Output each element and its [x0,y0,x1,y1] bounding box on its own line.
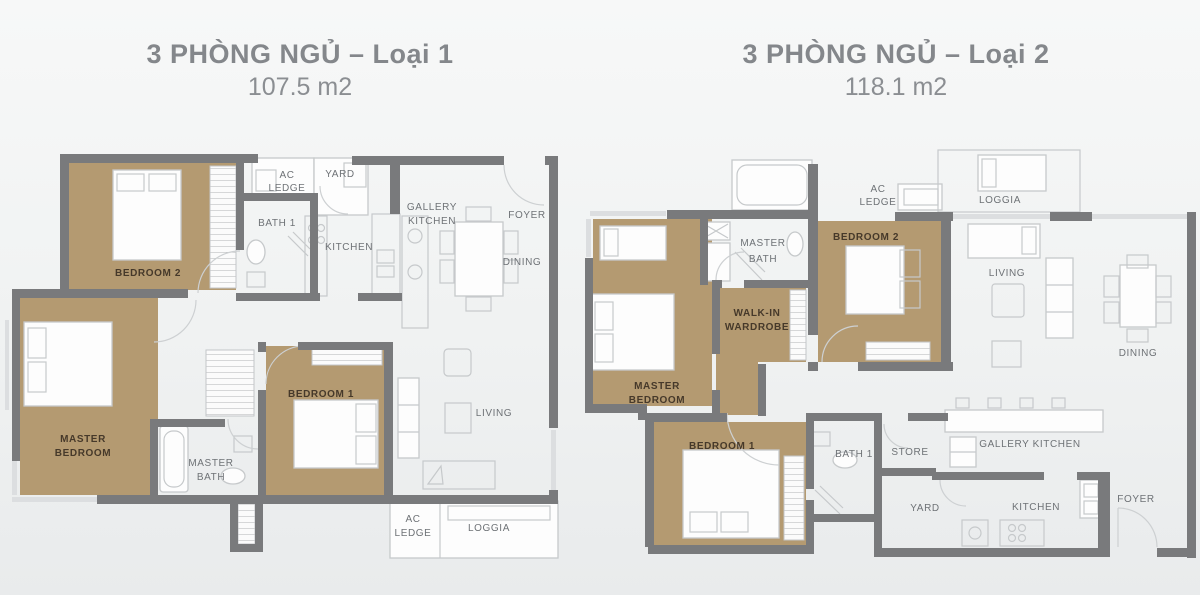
plan1-label-foyer: FOYER [508,210,545,221]
plan1-label-ac-ledge-top-2: LEDGE [269,183,306,194]
plan2-label-masterbath-2: BATH [749,254,777,265]
plan1-label-bedroom1: BEDROOM 1 [288,389,354,400]
plan2-label-foyer: FOYER [1117,494,1154,505]
plan2-label-store: STORE [891,447,928,458]
plan2-label-bath1: BATH 1 [835,449,873,460]
plan2-label-yard: YARD [910,503,939,514]
plan2-service-outlines [732,150,1080,212]
plan1-label-ac-ledge-top-1: AC [279,170,294,181]
plan2-label-master-2: BEDROOM [629,395,685,406]
plan1-label-kitchen: KITCHEN [325,242,373,253]
plan2-label-living: LIVING [989,268,1025,279]
plan2-label-walkin-1: WALK-IN [734,308,781,319]
plan2-label-dining: DINING [1119,348,1158,359]
plan1-label-dining: DINING [503,257,542,268]
floor-plan-sheet: 3 PHÒNG NGỦ – Loại 1 107.5 m2 3 PHÒNG NG… [0,0,1200,595]
plan1-label-bath1: BATH 1 [258,218,296,229]
plan1-label-loggia: LOGGIA [468,523,510,534]
floor-plan-canvas: BEDROOM 2 AC LEDGE YARD BATH 1 KITCHEN G… [0,0,1200,595]
plan1-label-bedroom2: BEDROOM 2 [115,268,181,279]
plan2-label-ac-ledge-2: LEDGE [860,197,897,208]
plan1-label-yard: YARD [325,169,354,180]
plan1-label-master-2: BEDROOM [55,448,111,459]
plan1-label-masterbath-1: MASTER [188,458,233,469]
plan2-label-kitchen: KITCHEN [1012,502,1060,513]
plan2-label-loggia: LOGGIA [979,195,1021,206]
plan2-label-gallery-kitchen: GALLERY KITCHEN [979,439,1080,450]
plan2-label-walkin-2: WARDROBE [725,322,789,333]
plan1-label-master-1: MASTER [60,434,106,445]
plan1-label-masterbath-2: BATH [197,472,225,483]
floor-plan-loai-1: BEDROOM 2 AC LEDGE YARD BATH 1 KITCHEN G… [5,154,558,558]
plan1-label-ac-ledge-bot-1: AC [405,514,420,525]
plan1-label-gallery-1: GALLERY [407,202,457,213]
plan2-label-ac-ledge-1: AC [870,184,885,195]
plan1-label-ac-ledge-bot-2: LEDGE [395,528,432,539]
floor-plan-loai-2: MASTER BATH AC LEDGE LOGGIA BEDROOM 2 WA… [585,150,1196,558]
plan2-label-bedroom1: BEDROOM 1 [689,441,755,452]
plan1-label-living: LIVING [476,408,512,419]
plan2-label-bedroom2: BEDROOM 2 [833,232,899,243]
plan1-label-gallery-2: KITCHEN [408,216,456,227]
plan2-label-masterbath-1: MASTER [740,238,785,249]
plan2-label-master-1: MASTER [634,381,680,392]
